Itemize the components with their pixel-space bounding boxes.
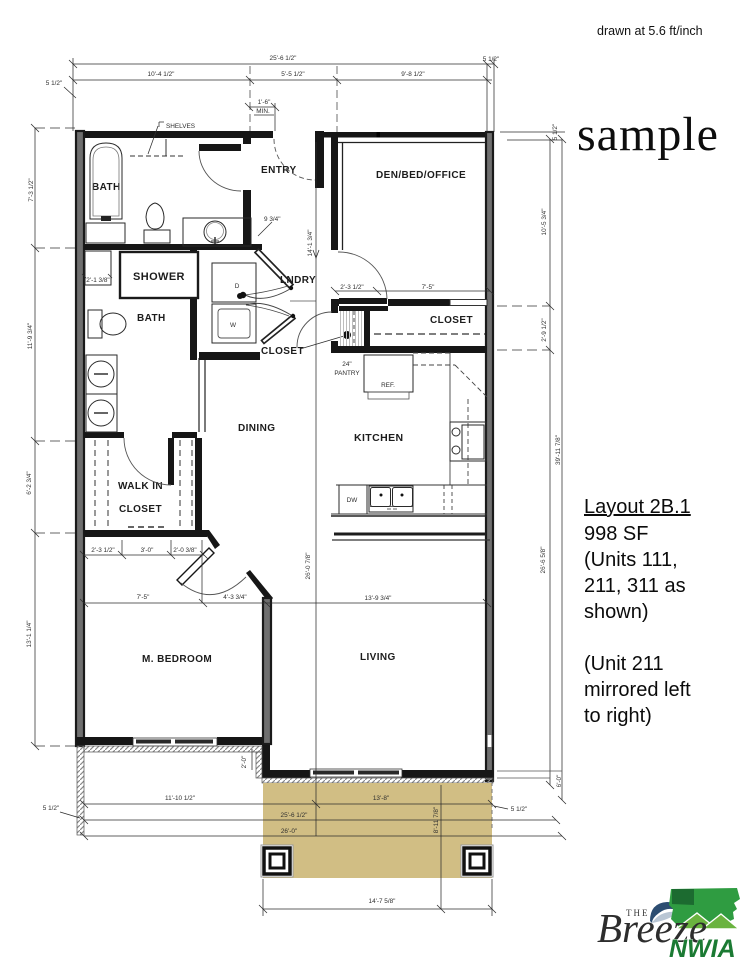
svg-text:7'-5": 7'-5" (422, 284, 435, 291)
svg-text:BATH: BATH (137, 313, 166, 324)
svg-text:W: W (230, 322, 237, 329)
svg-text:2'-1 3/8": 2'-1 3/8" (86, 277, 109, 284)
svg-text:998 SF: 998 SF (584, 523, 648, 545)
svg-text:PANTRY: PANTRY (334, 370, 360, 377)
svg-text:shown): shown) (584, 601, 648, 623)
svg-text:11'-9 3/4": 11'-9 3/4" (27, 323, 34, 349)
svg-text:7'-3 1/2": 7'-3 1/2" (28, 178, 35, 201)
svg-text:9'-8 1/2": 9'-8 1/2" (401, 71, 424, 78)
svg-text:NWIA: NWIA (669, 935, 736, 960)
svg-text:CLOSET: CLOSET (430, 315, 473, 326)
svg-text:13'-8": 13'-8" (373, 795, 389, 802)
svg-text:CLOSET: CLOSET (119, 504, 162, 515)
svg-text:2'-3 1/2": 2'-3 1/2" (91, 547, 114, 554)
svg-text:11'-10 1/2": 11'-10 1/2" (165, 795, 195, 802)
svg-text:Layout 2B.1: Layout 2B.1 (584, 496, 691, 518)
svg-text:KITCHEN: KITCHEN (354, 432, 403, 444)
svg-text:26'-6 5/8": 26'-6 5/8" (540, 547, 547, 574)
svg-text:10'-5 3/4": 10'-5 3/4" (541, 209, 548, 236)
svg-text:REF.: REF. (381, 382, 395, 389)
svg-text:DEN/BED/OFFICE: DEN/BED/OFFICE (376, 170, 466, 181)
svg-text:LIVING: LIVING (360, 652, 396, 663)
svg-text:6'-0": 6'-0" (556, 775, 563, 788)
svg-text:13'-1 1/4": 13'-1 1/4" (26, 621, 33, 648)
svg-text:5 1/2": 5 1/2" (511, 806, 527, 813)
svg-text:25'-6 1/2": 25'-6 1/2" (281, 812, 308, 819)
svg-text:4'-3 3/4": 4'-3 3/4" (223, 594, 246, 601)
svg-text:7'-5": 7'-5" (137, 594, 150, 601)
svg-text:to right): to right) (584, 705, 652, 727)
svg-text:5 1/2": 5 1/2" (43, 805, 59, 812)
svg-text:14'-7 5/8": 14'-7 5/8" (369, 898, 396, 905)
svg-text:5 1/2": 5 1/2" (46, 80, 62, 87)
svg-text:1'-6": 1'-6" (258, 99, 271, 106)
svg-text:drawn at 5.6 ft/inch: drawn at 5.6 ft/inch (597, 24, 703, 38)
svg-text:(Units 111,: (Units 111, (584, 549, 678, 571)
svg-text:6'-2 3/4": 6'-2 3/4" (26, 471, 33, 494)
svg-text:2'-9 1/2": 2'-9 1/2" (541, 318, 548, 341)
svg-text:10'-4 1/2": 10'-4 1/2" (148, 71, 175, 78)
svg-text:8'-11 7/8": 8'-11 7/8" (433, 807, 440, 833)
svg-text:sample: sample (577, 108, 719, 161)
svg-text:MIN.: MIN. (256, 108, 270, 115)
svg-text:DINING: DINING (238, 423, 275, 434)
svg-text:5 1/2": 5 1/2" (552, 124, 559, 140)
svg-text:13'-9 3/4": 13'-9 3/4" (365, 595, 392, 602)
svg-text:26'-0": 26'-0" (281, 828, 297, 835)
svg-text:14'-1 3/4": 14'-1 3/4" (307, 230, 314, 257)
svg-text:DW: DW (347, 497, 359, 504)
svg-text:5'-5 1/2": 5'-5 1/2" (281, 71, 304, 78)
svg-text:2'-0": 2'-0" (241, 756, 248, 769)
svg-text:SHOWER: SHOWER (133, 271, 185, 283)
svg-text:2'-0 3/8": 2'-0 3/8" (173, 547, 196, 554)
svg-text:M. BEDROOM: M. BEDROOM (142, 654, 212, 665)
svg-text:39'-11 7/8": 39'-11 7/8" (555, 435, 562, 465)
svg-text:3'-0": 3'-0" (141, 547, 154, 554)
svg-text:ENTRY: ENTRY (261, 165, 297, 176)
svg-text:25'-6 1/2": 25'-6 1/2" (270, 55, 297, 62)
svg-text:LNDRY: LNDRY (280, 275, 316, 286)
svg-text:24": 24" (342, 361, 351, 368)
svg-text:SHELVES: SHELVES (166, 123, 195, 130)
svg-text:26'-0 7/8": 26'-0 7/8" (305, 553, 312, 580)
svg-text:D: D (235, 283, 240, 290)
svg-text:mirrored left: mirrored left (584, 679, 691, 701)
svg-text:2'-3 1/2": 2'-3 1/2" (340, 284, 363, 291)
svg-text:BATH: BATH (92, 182, 121, 193)
svg-text:(Unit 211: (Unit 211 (584, 653, 664, 675)
svg-text:9 3/4": 9 3/4" (264, 216, 280, 223)
svg-text:CLOSET: CLOSET (261, 346, 304, 357)
svg-text:211, 311 as: 211, 311 as (584, 575, 686, 597)
